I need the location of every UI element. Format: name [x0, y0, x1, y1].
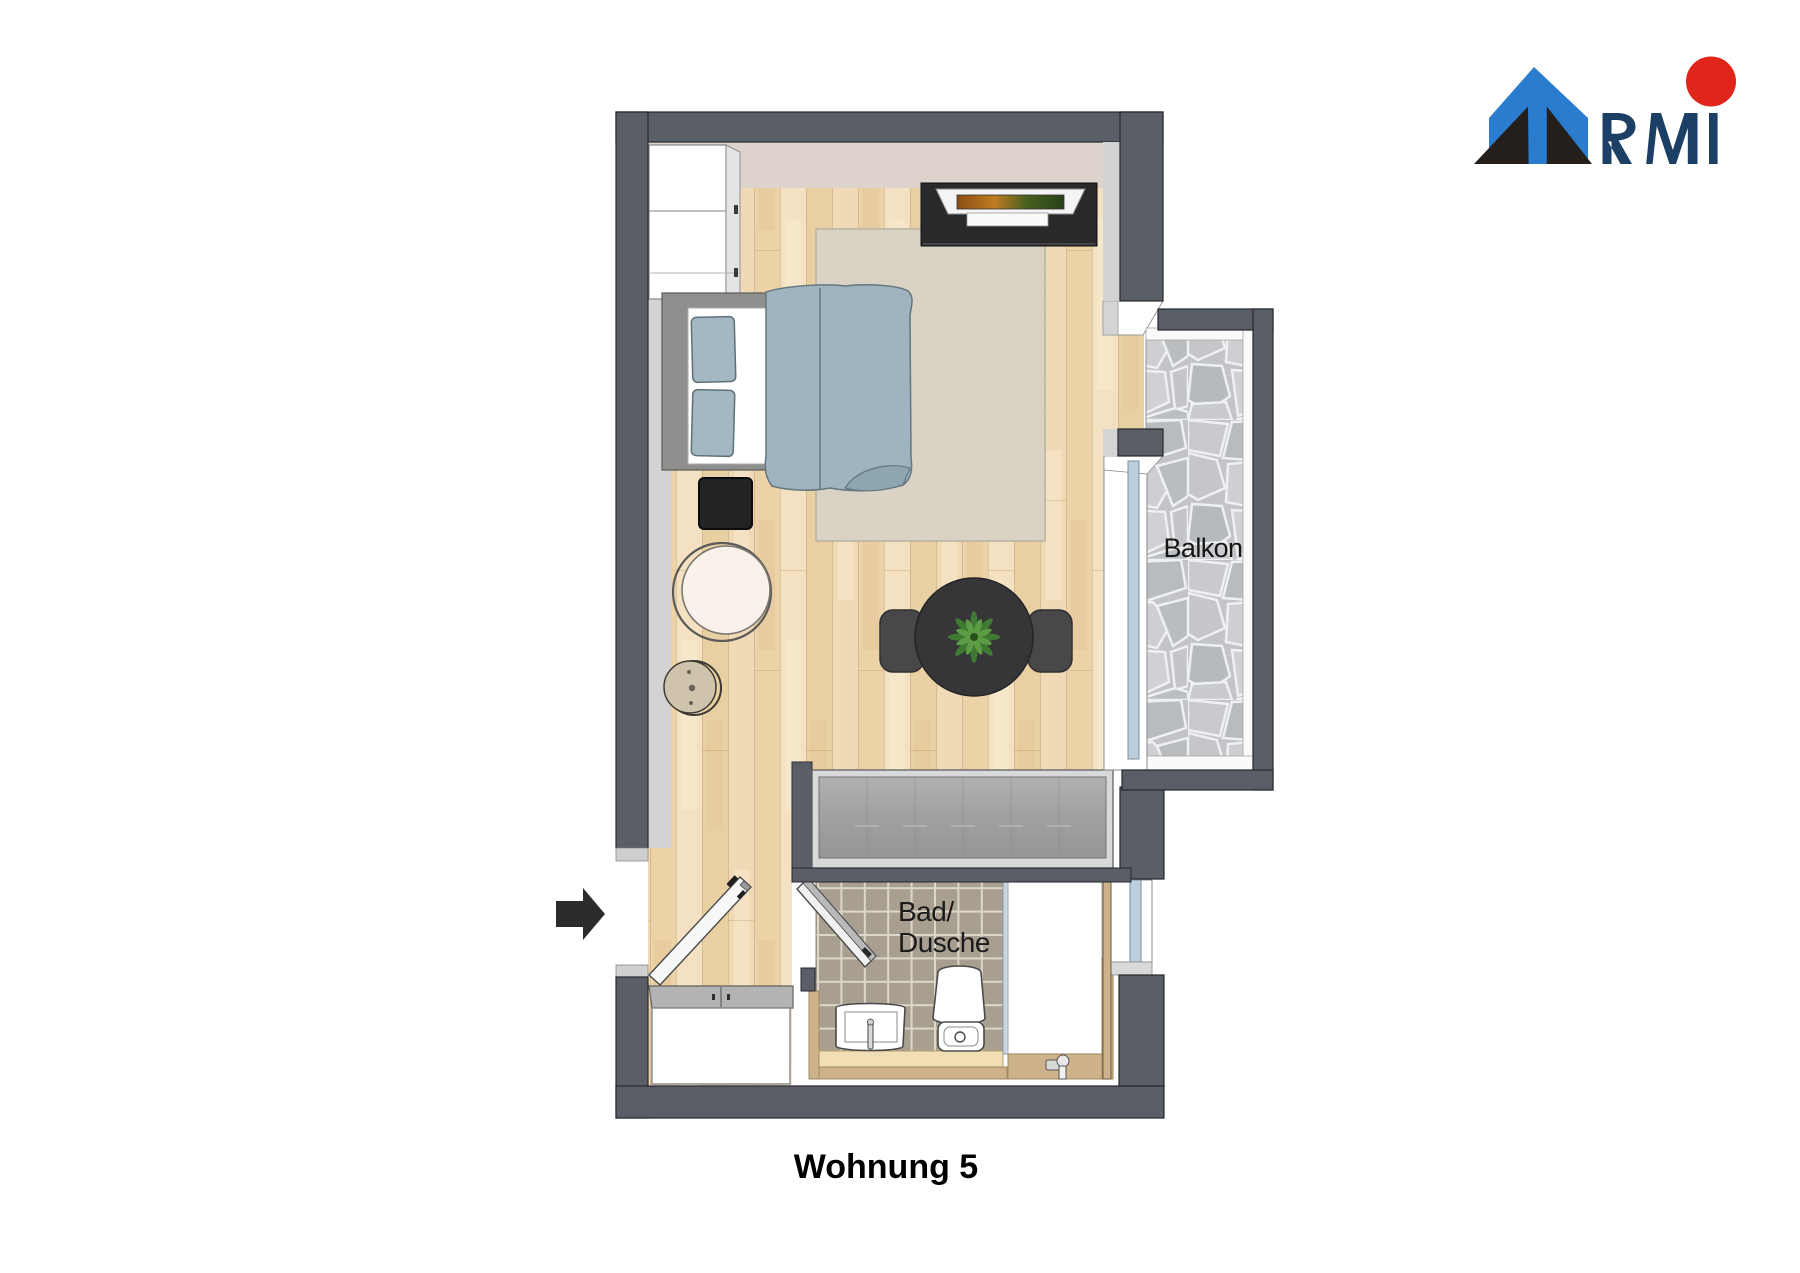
svg-text:Wohnung 5: Wohnung 5 — [794, 1148, 978, 1186]
svg-text:Dusche: Dusche — [898, 927, 990, 958]
svg-text:Bad/: Bad/ — [898, 896, 954, 927]
svg-text:Balkon: Balkon — [1164, 533, 1243, 563]
